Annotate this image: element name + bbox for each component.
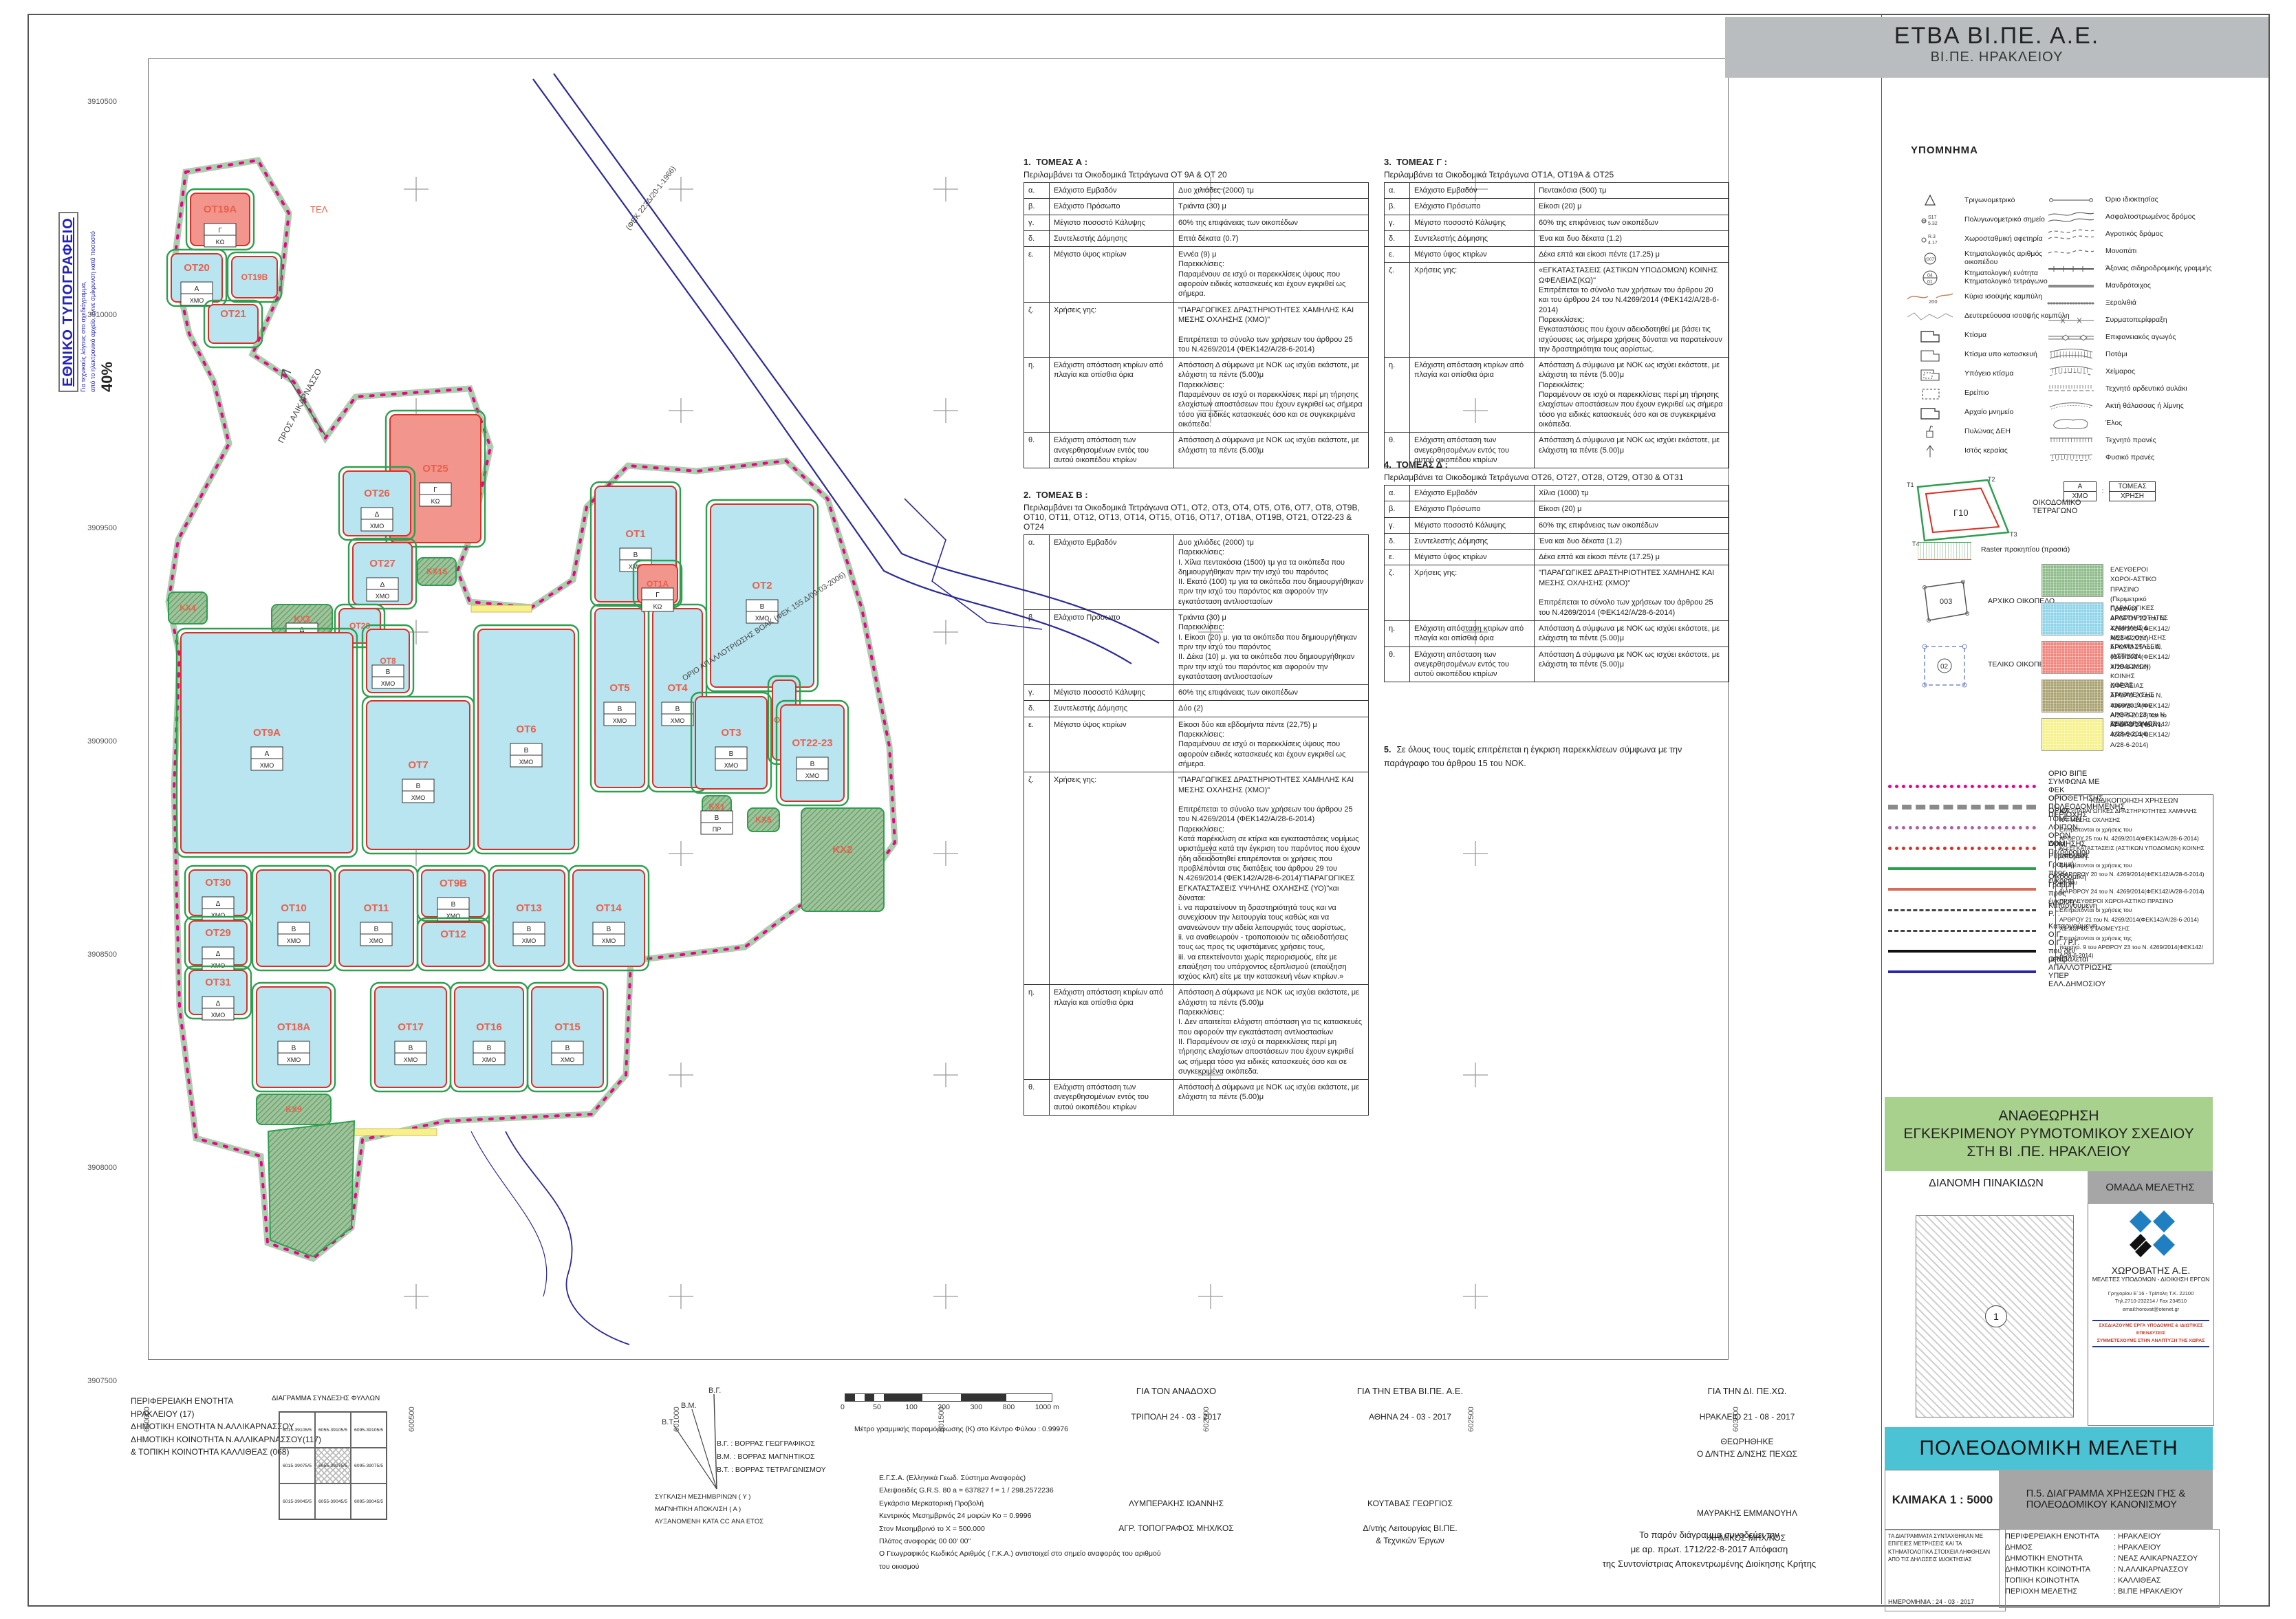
line-legend-item: ΟΡΙΟ ΒΙΠΕ ΣΥΜΦΩΝΑ ΜΕ ΦΕΚ ΟΡΙΟΘΕΤΗΣΗΣ bbox=[1888, 776, 2053, 796]
svg-text:ΧΜΟ: ΧΜΟ bbox=[211, 912, 226, 919]
grid-cross bbox=[933, 177, 958, 202]
block-label: ΚΧ16 bbox=[426, 567, 447, 576]
svg-text:ΧΜΟ: ΧΜΟ bbox=[190, 297, 204, 304]
grid-cross bbox=[933, 398, 958, 423]
spec-row: α.Ελάχιστο ΕμβαδόνΠεντακόσια (500) τμ bbox=[1385, 183, 1729, 199]
block-label: ΟΤ5 bbox=[609, 682, 629, 694]
title-header: ΕΤΒΑ ΒΙ.ΠΕ. Α.Ε. ΒΙ.ΠΕ. ΗΡΑΚΛΕΙΟΥ bbox=[1725, 17, 2268, 78]
svg-text:Β: Β bbox=[715, 814, 719, 822]
disclaimer-box: ΤΑ ΔΙΑΓΡΑΜΜΑΤΑ ΣΥΝΤΑΧΘΗΚΑΝ ΜΕ ΕΠΙΓΕΙΕΣ Μ… bbox=[1885, 1529, 2006, 1611]
block-label: ΚΧ5 bbox=[755, 815, 772, 825]
svg-text:ΧΜΟ: ΧΜΟ bbox=[376, 593, 390, 600]
svg-text:Β: Β bbox=[451, 901, 456, 909]
coding-line: Επιτρέπονται οι χρήσεις του bbox=[2056, 906, 2213, 915]
map-block-ΟΤ16 bbox=[455, 987, 523, 1087]
map-block-ΟΤ5 bbox=[595, 609, 645, 787]
block-label: ΟΤ25 bbox=[422, 463, 448, 475]
svg-text:Β.Γ.: Β.Γ. bbox=[708, 1387, 721, 1395]
block-label: ΟΤ11 bbox=[364, 902, 389, 914]
block-label: ΚΧ9 bbox=[285, 1105, 302, 1114]
block-label: ΚΧ2 bbox=[832, 844, 852, 856]
block-label: ΟΤ13 bbox=[516, 902, 542, 914]
svg-text:Β: Β bbox=[386, 669, 391, 676]
spec-row: ζ.Χρήσεις γης:"ΠΑΡΑΓΩΓΙΚΕΣ ΔΡΑΣΤΗΡΙΟΤΗΤΕ… bbox=[1024, 772, 1369, 985]
spec-row: ζ.Χρήσεις γης:"ΠΑΡΑΓΩΓΙΚΕΣ ΔΡΑΣΤΗΡΙΟΤΗΤΕ… bbox=[1024, 302, 1369, 357]
legend-item: Τεχνητό πρανές bbox=[2046, 432, 2218, 449]
legend-symbol-icon bbox=[2046, 279, 2096, 294]
legend-symbol-icon: S175.32 bbox=[1905, 213, 1955, 228]
use-coding-box: ΚΩΔΙΚΟΠΟΙΗΣΗ ΧΡΗΣΕΩΝ ΧΜΟ:ΠΑΡΑΓΩΓΙΚΕΣ ΔΡΑ… bbox=[2055, 794, 2213, 964]
map-block-ΟΤ10 bbox=[257, 870, 331, 966]
legend-item: Ασφαλτοστρωμένος δρόμος bbox=[2046, 208, 2218, 226]
arxiko-oikopedo-symbol: 003 bbox=[1918, 578, 1973, 626]
grid-cross bbox=[669, 398, 693, 423]
block-label: ΟΤ19Β bbox=[241, 272, 268, 282]
revision-banner: ΑΝΑΘΕΩΡΗΣΗ ΕΓΚΕΚΡΙΜΕΝΟΥ ΡΥΜΟΤΟΜΙΚΟΥ ΣΧΕΔ… bbox=[1885, 1097, 2213, 1171]
stamp-line1: Για τεχνικούς λόγους στο σχεδιάγραμμα, bbox=[80, 144, 87, 392]
svg-text:Γ: Γ bbox=[433, 486, 437, 494]
svg-text:Β: Β bbox=[675, 706, 680, 713]
svg-text:ΧΜΟ: ΧΜΟ bbox=[260, 762, 274, 769]
svg-text:02: 02 bbox=[1940, 663, 1949, 671]
line-legend-item: ΟΡΙΟ ΤΟΜΕΩΝ ΛΟΙΠΩΝ ΟΡΩΝ ΔΟΜΗΣΗΣ bbox=[1888, 817, 2053, 838]
block-label: ΟΤ14 bbox=[596, 902, 622, 914]
coding-line: παραγρ. 9 του ΑΡΘΡΟΥ 23 του Ν. 4269/2014… bbox=[2056, 943, 2213, 960]
svg-text:ΧΜΟ: ΧΜΟ bbox=[404, 1056, 418, 1063]
line-sample bbox=[1888, 805, 2036, 810]
block-label: ΟΤ26 bbox=[364, 488, 390, 499]
sheet-grid-cell: 6055-39075/5 bbox=[315, 1448, 351, 1484]
block-label: ΟΤ30 bbox=[205, 877, 231, 889]
legend-symbol-icon bbox=[2046, 261, 2096, 276]
location-info-row: ΔΗΜΟΣ: ΗΡΑΚΛΕΙΟΥ bbox=[2005, 1543, 2219, 1554]
table-subtitle: Περιλαμβάνει τα Οικοδομικά Τετράγωνα ΟΤ1… bbox=[1384, 170, 1729, 180]
spec-row: δ.Συντελεστής ΔόμησηςΈνα και δυο δέκατα … bbox=[1385, 230, 1729, 246]
svg-text:ΧΜΟ: ΧΜΟ bbox=[381, 680, 396, 687]
svg-text:T3: T3 bbox=[2010, 531, 2017, 538]
svg-text:ΧΜΟ: ΧΜΟ bbox=[522, 937, 537, 944]
map-block-ΟΤ14 bbox=[573, 870, 645, 966]
svg-text:ΧΜΟ: ΧΜΟ bbox=[724, 762, 739, 769]
map-block-ΟΤ2 bbox=[711, 504, 814, 687]
svg-text:Δ: Δ bbox=[216, 950, 221, 958]
northing-label: 3909500 bbox=[69, 524, 117, 532]
coding-line: ΧΜΟ:ΠΑΡΑΓΩΓΙΚΕΣ ΔΡΑΣΤΗΡΙΟΤΗΤΕΣ ΧΑΜΗΛΗΣ bbox=[2056, 807, 2213, 816]
spec-row: δ.Συντελεστής ΔόμησηςΈνα και δυο δέκατα … bbox=[1385, 533, 1729, 549]
map-block-ΟΤ11 bbox=[339, 870, 413, 966]
legend-item: Μανδρότοιχος bbox=[2046, 277, 2218, 294]
spec-row: η.Ελάχιστη απόσταση κτιρίων από πλαγία κ… bbox=[1385, 620, 1729, 646]
svg-text:Β: Β bbox=[760, 603, 765, 611]
spec-row: ζ.Χρήσεις γης:"ΠΑΡΑΓΩΓΙΚΕΣ ΔΡΑΣΤΗΡΙΟΤΗΤΕ… bbox=[1385, 565, 1729, 620]
coding-line: α)ΑΡΘΡΟΥ 20 του Ν. 4269/2014(ΦΕΚ142/Α/28… bbox=[2056, 870, 2213, 887]
line-sample bbox=[1888, 970, 2036, 973]
legend-symbol-icon bbox=[2046, 399, 2096, 414]
block-label: ΟΤ27 bbox=[369, 558, 396, 569]
legend-symbol-icon: 0401 bbox=[1905, 270, 1955, 285]
block-label: ΟΤ2 bbox=[752, 580, 772, 591]
legend-symbol-icon bbox=[2046, 450, 2096, 466]
svg-text:Δ: Δ bbox=[216, 900, 221, 908]
svg-text:Β: Β bbox=[810, 761, 815, 768]
location-info: ΠΕΡΙΦΕΡΕΙΑΚΗ ΕΝΟΤΗΤΑ: ΗΡΑΚΛΕΙΟΥ ΔΗΜΟΣ: Η… bbox=[1999, 1529, 2220, 1608]
north-notes: ΣΥΓΚΛΙΣΗ ΜΕΣΗΜΒΡΙΝΩΝ ( Υ )ΜΑΓΝΗΤΙΚΗ ΑΠΟΚ… bbox=[655, 1491, 763, 1528]
map-annotation: ΠΡΟΣ ΑΛΙΚΑΡΝΑΣΣΟ bbox=[276, 367, 323, 445]
sector-a-table: 1. ΤΟΜΕΑΣ Α : Περιλαμβάνει τα Οικοδομικά… bbox=[1024, 157, 1369, 468]
legend-symbol-icon: 200 bbox=[1905, 290, 1955, 305]
study-banner: ΠΟΛΕΟΔΟΜΙΚΗ ΜΕΛΕΤΗ bbox=[1885, 1427, 2213, 1470]
coding-line: Επιτρέπονται οι χρήσεις της bbox=[2056, 934, 2213, 943]
svg-text:ΧΜΟ: ΧΜΟ bbox=[211, 1012, 226, 1019]
spec-row: δ.Συντελεστής ΔόμησηςΔύο (2) bbox=[1024, 701, 1369, 717]
note-5: 5.Σε όλους τους τομείς επιτρέπεται η έγκ… bbox=[1384, 743, 1729, 770]
northing-label: 3909000 bbox=[69, 737, 117, 746]
legend-symbol-icon bbox=[2046, 330, 2096, 345]
easting-label: 600500 bbox=[408, 1406, 416, 1432]
svg-text:ΧΜΟ: ΧΜΟ bbox=[411, 794, 426, 801]
line-sample bbox=[1888, 826, 2036, 829]
svg-text:Δ: Δ bbox=[380, 581, 385, 589]
legend-title: ΥΠΟΜΝΗΜΑ bbox=[1911, 144, 1978, 156]
table-subtitle: Περιλαμβάνει τα Οικοδομικά Τετράγωνα ΟΤ2… bbox=[1384, 472, 1729, 482]
northing-label: 3907500 bbox=[69, 1377, 117, 1385]
coding-line: ΑΡΘΡΟΥ 21 του Ν. 4269/2014(ΦΕΚ142/Α/28-6… bbox=[2056, 915, 2213, 924]
svg-text:ΧΜΟ: ΧΜΟ bbox=[369, 937, 384, 944]
map-annotation: ΤΕΛ bbox=[310, 204, 328, 215]
svg-text:T1: T1 bbox=[1907, 481, 1914, 488]
distortion-factor: Μέτρο γραμμικής παραμόρφωσης (Κ) στο Κέν… bbox=[854, 1425, 1068, 1433]
line-sample bbox=[1888, 888, 2036, 891]
northing-label: 3910500 bbox=[69, 98, 117, 106]
use-swatch: ΠΕΖΟΔΡΟΜΟΣ bbox=[2042, 718, 2156, 751]
svg-text:T2: T2 bbox=[1988, 476, 1995, 483]
svg-text:200: 200 bbox=[1929, 298, 1938, 305]
legend-item: Έλος bbox=[2046, 415, 2218, 432]
use-swatch-color bbox=[2042, 718, 2103, 751]
location-info-row: ΔΗΜΟΤΙΚΗ ΕΝΟΤΗΤΑ: ΝΕΑΣ ΑΛΙΚΑΡΝΑΣΣΟΥ bbox=[2005, 1554, 2219, 1565]
svg-text:ΧΜΟ: ΧΜΟ bbox=[287, 937, 301, 944]
block-label: ΚΧ1 bbox=[708, 802, 725, 812]
legend-symbol-icon bbox=[1905, 193, 1955, 208]
svg-text:5.32: 5.32 bbox=[1928, 221, 1938, 226]
legend-item: Επιφανειακός αγωγός bbox=[2046, 329, 2218, 346]
northing-label: 3910000 bbox=[69, 311, 117, 319]
legend-item: Άξονας σιδηροδρομικής γραμμής bbox=[2046, 260, 2218, 277]
northing-label: 3908500 bbox=[69, 950, 117, 959]
svg-text:4.17: 4.17 bbox=[1928, 241, 1938, 246]
line-sample bbox=[1888, 930, 2036, 932]
signature-etva: ΓΙΑ ΤΗΝ ΕΤΒΑ ΒΙ.ΠΕ. Α.Ε. ΑΘΗΝΑ 24 - 03 -… bbox=[1307, 1372, 1513, 1559]
company-address: Γρηγορίου Ε΄16 - Τρίπολη Τ.Κ. 22100 Τηλ.… bbox=[2088, 1290, 2213, 1313]
legend-symbol-icon bbox=[1905, 328, 1955, 343]
spec-row: α.Ελάχιστο ΕμβαδόνΔυο χιλιάδες (2000) τμ… bbox=[1024, 535, 1369, 610]
grid-cross bbox=[933, 1063, 958, 1087]
stream-line bbox=[506, 1131, 629, 1345]
geodetic-line: Ο Γεωγραφικός Κωδικός Αριθμός ( Γ.Κ.Α.) … bbox=[879, 1547, 1168, 1573]
svg-text:ΧΜΟ: ΧΜΟ bbox=[287, 1056, 301, 1063]
spec-row: θ.Ελάχιστη απόσταση των ανεγερθησομένων … bbox=[1024, 1080, 1369, 1116]
site-name: ΒΙ.ΠΕ. ΗΡΑΚΛΕΙΟΥ bbox=[1725, 50, 2268, 65]
coding-line: β)ΑΡΘΡΟΥ 24 του Ν. 4269/2014(ΦΕΚ142/Α/28… bbox=[2056, 887, 2213, 896]
svg-text:Α: Α bbox=[265, 750, 270, 758]
svg-text:Β: Β bbox=[416, 783, 421, 790]
svg-text:Β: Β bbox=[729, 750, 734, 758]
national-printing-stamp: ΕΘΝΙΚΟ ΤΥΠΟΓΡΑΦΕΙΟ Για τεχνικούς λόγους … bbox=[61, 144, 114, 392]
svg-text:Β: Β bbox=[633, 552, 638, 559]
svg-text:ΧΜΟ: ΧΜΟ bbox=[613, 717, 627, 724]
svg-text:Α: Α bbox=[195, 285, 199, 293]
company-name: ΕΤΒΑ ΒΙ.ΠΕ. Α.Ε. bbox=[1725, 23, 2268, 50]
company-tagline: ΜΕΛΕΤΕΣ ΥΠΟΔΟΜΩΝ - ΔΙΟΙΚΗΣΗ ΕΡΓΩΝ bbox=[2088, 1276, 2213, 1283]
legend-symbol-icon: R.34.17 bbox=[1905, 232, 1955, 247]
svg-text:R.3: R.3 bbox=[1928, 235, 1936, 239]
svg-text:S17: S17 bbox=[1928, 215, 1937, 220]
block-label: ΟΤ31 bbox=[205, 977, 231, 988]
spec-row: γ.Μέγιστο ποσοστό Κάλυψης60% της επιφάνε… bbox=[1024, 215, 1369, 230]
sheet-grid-cell: 6095-39105/5 bbox=[351, 1412, 387, 1448]
map-block-ΚΧ2 bbox=[801, 808, 884, 911]
svg-text:Γ10: Γ10 bbox=[1953, 508, 1969, 518]
sector-b-table: 2. ΤΟΜΕΑΣ Β : Περιλαμβάνει τα Οικοδομικά… bbox=[1024, 490, 1369, 1116]
block-label: ΟΤ9Β bbox=[440, 878, 467, 889]
grid-cross bbox=[1463, 1284, 1488, 1309]
line-legend-item: ΟΡΙΟ ΑΠΑΛΛΟΤΡΙΩΣΗΣ ΥΠΕΡ ΕΛΛ.ΔΗΜΟΣΙΟΥ bbox=[1888, 961, 2053, 982]
legend-symbol-icon: (007) bbox=[1905, 251, 1955, 266]
building-block-diagram: Γ10 T1T2 T3T4 bbox=[1905, 475, 2029, 550]
block-label: ΟΤ12 bbox=[440, 928, 466, 940]
line-legend-item: Ρυμοτομική Γραμμή προς έγκριση bbox=[1888, 858, 2053, 879]
use-swatch-color bbox=[2042, 602, 2103, 635]
sector-c-table: 3. ΤΟΜΕΑΣ Γ : Περιλαμβάνει τα Οικοδομικά… bbox=[1384, 157, 1729, 468]
scale-label: ΚΛΙΜΑΚΑ 1 : 5000 bbox=[1885, 1470, 2000, 1530]
svg-text:ΧΜΟ: ΧΜΟ bbox=[482, 1056, 497, 1063]
drawing-sheet: ΕΘΝΙΚΟ ΤΥΠΟΓΡΑΦΕΙΟ Για τεχνικούς λόγους … bbox=[0, 0, 2296, 1619]
line-legend-item: ΟΡΙΟ ΠΟΛΕΟΔΟΜΗΜΕΝΗΣ ΠΕΡΙΟΧΗΣ bbox=[1888, 796, 2053, 817]
scale-bar bbox=[845, 1393, 1052, 1402]
legend-symbol-icon bbox=[2046, 313, 2096, 328]
use-swatch-color bbox=[2042, 641, 2103, 674]
spec-row: ε.Μέγιστο ύψος κτιρίωνΕίκοσι δύο και εβδ… bbox=[1024, 717, 1369, 772]
table-title: ΤΟΜΕΑΣ Α : bbox=[1036, 157, 1087, 167]
legend-symbol-icon bbox=[2046, 296, 2096, 311]
legend-item: Μονοπάτι bbox=[2046, 243, 2218, 260]
sheet-title: Π.5. ΔΙΑΓΡΑΜΜΑ ΧΡΗΣΕΩΝ ΓΗΣ & ΠΟΛΕΟΔΟΜΙΚΟ… bbox=[1999, 1470, 2213, 1529]
coding-line: ΚΑΙ ΜΕΣΗΣ ΟΧΛΗΣΗΣ bbox=[2056, 816, 2213, 825]
line-legend-item: Καταργούμενη Ο.Γ. bbox=[1888, 920, 2053, 941]
legend-item: Συρματοπερίφραξη bbox=[2046, 312, 2218, 329]
block-label: ΟΤ17 bbox=[398, 1021, 424, 1033]
spec-row: α.Ελάχιστο ΕμβαδόνΔυο χιλιάδες (2000) τμ bbox=[1024, 183, 1369, 199]
spec-row: β.Ελάχιστο ΠρόσωποΕίκοσι (20) μ bbox=[1385, 501, 1729, 517]
table-subtitle: Περιλαμβάνει τα Οικοδομικά Τετράγωνα ΟΤ … bbox=[1024, 170, 1369, 180]
grid-cross bbox=[933, 841, 958, 866]
grid-cross bbox=[1198, 1284, 1223, 1309]
line-legend-item: Όριο Πεζόδρομου bbox=[1888, 838, 2053, 858]
legend-symbol-icon bbox=[1905, 347, 1955, 362]
decision-note: Το παρόν διάγραμμα συνοδεύει την με αρ. … bbox=[1561, 1528, 1857, 1571]
block-label: ΟΤ7 bbox=[408, 759, 428, 771]
spec-row: β.Ελάχιστο ΠρόσωποΤριάντα (30) μ bbox=[1024, 199, 1369, 215]
grid-cross bbox=[669, 1284, 693, 1309]
svg-text:Δ: Δ bbox=[375, 511, 380, 519]
legend-symbol-icon bbox=[1905, 424, 1955, 439]
panel-divider bbox=[1881, 14, 1882, 1604]
stream-line bbox=[471, 1131, 547, 1296]
svg-text:(007): (007) bbox=[1925, 257, 1936, 262]
location-info-row: ΠΕΡΙΦΕΡΕΙΑΚΗ ΕΝΟΤΗΤΑ: ΗΡΑΚΛΕΙΟΥ bbox=[2005, 1532, 2219, 1543]
spec-row: θ.Ελάχιστη απόσταση των ανεγερθησομένων … bbox=[1385, 646, 1729, 682]
svg-text:ΚΩ: ΚΩ bbox=[431, 498, 440, 505]
spec-row: ε.Μέγιστο ύψος κτιρίωνΔέκα επτά και είκο… bbox=[1385, 550, 1729, 565]
legend-right-column: Όριο ιδιοκτησίας Ασφαλτοστρωμένος δρόμος… bbox=[2046, 191, 2218, 466]
location-info-row: ΔΗΜΟΤΙΚΗ ΚΟΙΝΟΤΗΤΑ: Ν.ΑΛΛΙΚΑΡΝΑΣΣΟΥ bbox=[2005, 1565, 2219, 1576]
study-team-header: ΟΜΑΔΑ ΜΕΛΕΤΗΣ bbox=[2088, 1171, 2213, 1203]
line-legend-item: Καταργούμενη Ρ.Γ. bbox=[1888, 900, 2053, 920]
svg-text:Γ: Γ bbox=[218, 227, 222, 235]
spec-row: ε.Μέγιστο ύψος κτιρίωνΔέκα επτά και είκο… bbox=[1385, 247, 1729, 263]
company-slogan: ΣΧΕΔΙΑΖΟΥΜΕ ΕΡΓΑ ΥΠΟΔΟΜΗΣ & ΙΔΙΩΤΙΚΕΣ ΕΠ… bbox=[2092, 1320, 2209, 1348]
stamp-line2: από το ηλεκτρονικό αρχείο, έγινε σμίκρυν… bbox=[89, 144, 97, 392]
svg-text:ΧΜΟ: ΧΜΟ bbox=[370, 523, 385, 530]
svg-text:Β: Β bbox=[374, 926, 379, 933]
map-block-ΟΤ3 bbox=[695, 697, 767, 789]
sheet-distribution-header: ΔΙΑΝΟΜΗ ΠΙΝΑΚΙΔΩΝ bbox=[1885, 1177, 2088, 1190]
coding-title: ΚΩΔΙΚΟΠΟΙΗΣΗ ΧΡΗΣΕΩΝ bbox=[2056, 795, 2213, 807]
sheet-grid-cell: 6015-39045/5 bbox=[279, 1484, 315, 1519]
coding-line: ΧΣ:ΧΩΡΟΣ ΣΤΑΘΜΕΥΣΗΣ bbox=[2056, 924, 2213, 933]
svg-text:Β: Β bbox=[292, 926, 296, 933]
map-block-ΟΤ18Α bbox=[257, 987, 331, 1087]
spec-row: ε.Μέγιστο ύψος κτιρίωνΕννέα (9) μ Παρεκκ… bbox=[1024, 247, 1369, 302]
legend-item: Ξερολιθιά bbox=[2046, 294, 2218, 312]
grid-cross bbox=[1463, 1063, 1488, 1087]
block-label: ΟΤ1 bbox=[625, 528, 645, 540]
svg-text:Δ: Δ bbox=[216, 1000, 221, 1008]
date-label: ΗΜΕΡΟΜΗΝΙΑ : 24 - 03 - 2017 bbox=[1888, 1598, 1974, 1607]
svg-text:Γ: Γ bbox=[656, 591, 660, 599]
block-label: ΟΤ16 bbox=[476, 1021, 502, 1033]
stamp-title: ΕΘΝΙΚΟ ΤΥΠΟΓΡΑΦΕΙΟ bbox=[58, 212, 78, 392]
block-label: ΟΤ21 bbox=[220, 308, 246, 320]
grid-cross bbox=[404, 1284, 429, 1309]
sheet-grid-cell: 6095-39075/5 bbox=[351, 1448, 387, 1484]
block-label: ΟΤ18Α bbox=[277, 1021, 311, 1033]
block-label: ΟΤ3 bbox=[721, 727, 741, 739]
teliko-oikopedo-symbol: 02 bbox=[1918, 640, 1973, 693]
coding-line: ΚΩ:ΕΓΚΑΤΑΣΤΑΣΕΙΣ (ΑΣΤΙΚΩΝ ΥΠΟΔΟΜΩΝ) ΚΟΙΝ… bbox=[2056, 844, 2213, 861]
spec-row: ζ.Χρήσεις γης:«ΕΓΚΑΤΑΣΤΑΣΕΙΣ (ΑΣΤΙΚΩΝ ΥΠ… bbox=[1385, 263, 1729, 358]
coding-line: ΠΡ:ΕΛΕΥΘΕΡΟΙ ΧΩΡΟΙ-ΑΣΤΙΚΟ ΠΡΑΣΙΝΟ bbox=[2056, 897, 2213, 906]
company: ΧΩΡΟΒΑΤΗΣ Α.Ε. bbox=[2088, 1265, 2213, 1276]
table-subtitle: Περιλαμβάνει τα Οικοδομικά Τετράγωνα ΟΤ1… bbox=[1024, 503, 1369, 532]
map-block-ΟΤ7 bbox=[367, 701, 470, 849]
svg-text:ΠΡ: ΠΡ bbox=[713, 826, 722, 833]
svg-text:ΧΜΟ: ΧΜΟ bbox=[602, 937, 616, 944]
legend-item: Ακτή θάλασσας ή λίμνης bbox=[2046, 398, 2218, 415]
svg-text:Β: Β bbox=[565, 1045, 570, 1052]
raster-prasia-label: Raster προκηπίου (πρασιά) bbox=[1981, 545, 2070, 554]
northing-label: 3908000 bbox=[69, 1164, 117, 1172]
signature-contractor: ΓΙΑ ΤΟΝ ΑΝΑΔΟΧΟ ΤΡΙΠΟΛΗ 24 - 03 - 2017 Λ… bbox=[1073, 1372, 1279, 1547]
block-label: ΟΤ10 bbox=[281, 902, 307, 914]
svg-text:003: 003 bbox=[1940, 598, 1952, 606]
legend-symbol-icon bbox=[1905, 367, 1955, 382]
legend-symbol-icon bbox=[1905, 386, 1955, 401]
block-label: ΟΤ1Α bbox=[647, 579, 669, 589]
svg-text:ΚΩ: ΚΩ bbox=[653, 603, 662, 610]
map-block-ΟΤ13 bbox=[493, 870, 565, 966]
spec-row: θ.Ελάχιστη απόσταση των ανεγερθησομένων … bbox=[1024, 433, 1369, 468]
line-legend-item: Οικοδομική Γραμμή προς έγκριση bbox=[1888, 879, 2053, 900]
block-label: ΟΤ19Α bbox=[204, 204, 237, 215]
grid-cross bbox=[669, 177, 693, 202]
use-swatch-color bbox=[2042, 680, 2103, 713]
spec-row: γ.Μέγιστο ποσοστό Κάλυψης60% της επιφάνε… bbox=[1385, 215, 1729, 230]
line-sample bbox=[1888, 909, 2036, 911]
expropriation-line bbox=[905, 499, 1042, 629]
pedestrian-strip bbox=[354, 1129, 437, 1136]
line-sample bbox=[1888, 785, 2036, 788]
map-block-ΟΤ17 bbox=[375, 987, 446, 1087]
map-block-ΟΤ9Α bbox=[181, 633, 353, 853]
sector-use-ref: Α : ΤΟΜΕΑΣ ΧΜΟ ΧΡΗΣΗ bbox=[2064, 481, 2156, 501]
grid-cross bbox=[404, 177, 429, 202]
svg-text:Β.Μ.: Β.Μ. bbox=[681, 1402, 697, 1410]
spec-row: η.Ελάχιστη απόσταση κτιρίων από πλαγία κ… bbox=[1024, 985, 1369, 1080]
legend-symbol-icon bbox=[2046, 210, 2096, 225]
svg-text:Β: Β bbox=[618, 706, 622, 713]
spec-row: η.Ελάχιστη απόσταση κτιρίων από πλαγία κ… bbox=[1024, 358, 1369, 433]
map-block-ΟΤ22-23 bbox=[781, 705, 844, 801]
sheet-connection-grid: 6015-39105/56055-39105/56095-39105/56015… bbox=[279, 1411, 387, 1520]
line-legend: ΟΡΙΟ ΒΙΠΕ ΣΥΜΦΩΝΑ ΜΕ ΦΕΚ ΟΡΙΟΘΕΤΗΣΗΣ ΟΡΙ… bbox=[1888, 776, 2053, 982]
line-sample bbox=[1888, 950, 2036, 953]
spec-row: γ.Μέγιστο ποσοστό Κάλυψης60% της επιφάνε… bbox=[1024, 685, 1369, 701]
grid-cross bbox=[933, 1284, 958, 1309]
block-label: ΟΤ6 bbox=[516, 724, 536, 735]
svg-text:ΧΜΟ: ΧΜΟ bbox=[671, 717, 685, 724]
legend-item: Φυσικό πρανές bbox=[2046, 449, 2218, 466]
sheet-grid-title: ΔΙΑΓΡΑΜΜΑ ΣΥΝΔΕΣΗΣ ΦΥΛΛΩΝ bbox=[272, 1395, 380, 1402]
sheet-distribution-thumbnail: 1 bbox=[1916, 1215, 2074, 1417]
block-label: ΚΧ3 bbox=[294, 614, 310, 624]
svg-text:01: 01 bbox=[1927, 280, 1933, 285]
legend-item: Χείμαρος bbox=[2046, 363, 2218, 380]
coding-line: ΑΡΘΡΟΥ 25 του Ν. 4269/2014(ΦΕΚ142/Α/28-6… bbox=[2056, 834, 2213, 843]
scale-bar-labels: 0501002003008001000 m bbox=[841, 1403, 1068, 1411]
horovatis-logo bbox=[2116, 1209, 2185, 1259]
svg-text:ΧΜΟ: ΧΜΟ bbox=[805, 772, 820, 779]
sector-d-table: 4. ΤΟΜΕΑΣ Δ : Περιλαμβάνει τα Οικοδομικά… bbox=[1384, 459, 1729, 682]
location-info-row: ΤΟΠΙΚΗ ΚΟΙΝΟΤΗΤΑ: ΚΑΛΛΙΘΕΑΣ bbox=[2005, 1576, 2219, 1587]
block-label: ΟΤ9Α bbox=[253, 727, 281, 739]
stamp-percent: 40% bbox=[98, 144, 116, 392]
svg-text:Β: Β bbox=[487, 1045, 492, 1052]
pedestrian-strip bbox=[471, 605, 532, 612]
legend-symbol-icon bbox=[2046, 433, 2096, 448]
svg-text:Β: Β bbox=[409, 1045, 413, 1052]
grid-cross bbox=[669, 1063, 693, 1087]
coding-line: Επιτρέπονται οι χρήσεις του bbox=[2056, 861, 2213, 870]
legend-item: Ποτάμι bbox=[2046, 346, 2218, 363]
block-label: ΟΤ4 bbox=[667, 682, 688, 694]
legend-symbol-icon bbox=[1905, 309, 1955, 324]
raster-prasia-sample bbox=[1918, 542, 1971, 560]
grid-cross bbox=[1463, 841, 1488, 866]
line-sample bbox=[1888, 867, 2036, 870]
map-block-ΟΤ6 bbox=[478, 629, 574, 849]
sheet-grid-cell: 6055-39045/5 bbox=[315, 1484, 351, 1519]
